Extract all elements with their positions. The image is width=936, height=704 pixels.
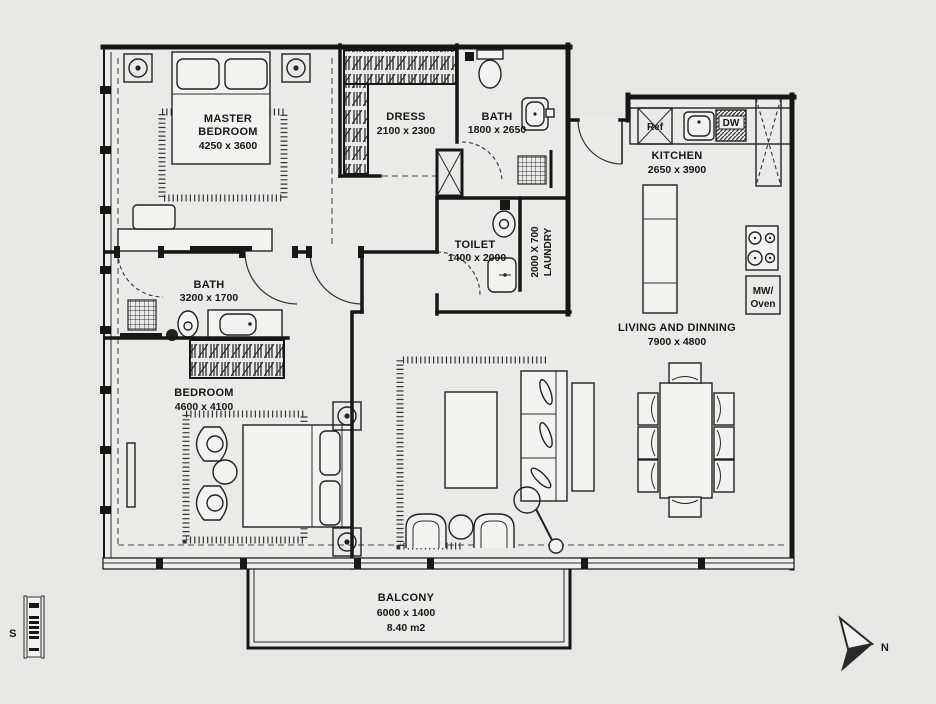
laundry-label: LAUNDRY xyxy=(543,227,554,276)
pillow xyxy=(320,481,340,525)
sofa xyxy=(521,371,567,501)
laundry-dims: 2000 X 700 xyxy=(530,226,541,278)
dress-label: DRESS xyxy=(386,111,425,123)
dishwasher-label: DW xyxy=(723,118,740,129)
dining-chair xyxy=(638,427,658,459)
wardrobe xyxy=(344,84,368,174)
dining-chair xyxy=(714,460,734,492)
wardrobe xyxy=(344,50,456,84)
dining-chair xyxy=(714,393,734,425)
pillow xyxy=(320,431,340,475)
shower xyxy=(518,156,546,184)
master-bedroom-dims: 4250 x 3600 xyxy=(199,140,258,152)
pillow xyxy=(177,59,219,89)
dining-chair xyxy=(638,393,658,425)
floor-plan-page: MASTER BEDROOM 4250 x 3600 DRESS 2100 x … xyxy=(0,0,936,704)
bedroom-dims: 4600 x 4100 xyxy=(175,401,234,413)
north-arrow-icon: N xyxy=(840,618,889,670)
island xyxy=(643,185,677,313)
kitchen-label: KITCHEN xyxy=(652,150,703,162)
balcony-area: 8.40 m2 xyxy=(387,622,426,634)
pillow xyxy=(225,59,267,89)
north-label: N xyxy=(881,642,889,654)
mw-oven-label1: MW/ xyxy=(753,286,774,297)
master-bedroom-label: MASTER xyxy=(204,113,252,125)
armchair xyxy=(406,514,446,548)
bath2-dims: 3200 x 1700 xyxy=(180,292,239,304)
armchair xyxy=(474,514,514,548)
dining-chair xyxy=(669,363,701,383)
floor-plan-drawing: MASTER BEDROOM 4250 x 3600 DRESS 2100 x … xyxy=(0,0,936,704)
living-dims: 7900 x 4800 xyxy=(648,336,707,348)
kitchen-dims: 2650 x 3900 xyxy=(648,164,707,176)
master-bedroom-label2: BEDROOM xyxy=(198,126,258,138)
toilet-label: TOILET xyxy=(455,239,496,251)
wardrobe xyxy=(190,340,284,378)
fridge-label: Ref xyxy=(647,122,664,133)
toilet-dims: 1400 x 2000 xyxy=(448,252,507,264)
side-table xyxy=(213,460,237,484)
mw-oven-label2: Oven xyxy=(750,299,775,310)
dining-chair xyxy=(669,497,701,517)
bottom-window-band xyxy=(103,558,794,569)
bath2-label: BATH xyxy=(194,279,225,291)
balcony-label: BALCONY xyxy=(378,592,435,604)
dining-chair xyxy=(714,427,734,459)
master-bath-label: BATH xyxy=(482,111,513,123)
master-bath-dims: 1800 x 2650 xyxy=(468,124,527,136)
toilet-wc xyxy=(178,311,198,337)
stool xyxy=(133,205,175,229)
console-table xyxy=(572,383,594,491)
section-label: S xyxy=(9,628,17,640)
coffee-table xyxy=(445,392,497,488)
bedroom-label: BEDROOM xyxy=(174,387,234,399)
dining-chair xyxy=(638,460,658,492)
dress-dims: 2100 x 2300 xyxy=(377,125,436,137)
toilet-wc xyxy=(493,211,515,237)
shower xyxy=(128,300,156,330)
section-marker: S xyxy=(9,596,44,658)
armchair xyxy=(197,427,228,461)
armchair xyxy=(197,486,228,520)
dining-table xyxy=(660,383,712,498)
toilet-wc xyxy=(479,60,501,88)
living-label: LIVING AND DINNING xyxy=(618,322,736,334)
side-table xyxy=(449,515,473,539)
shaft xyxy=(437,150,462,196)
balcony-dims: 6000 x 1400 xyxy=(377,607,436,619)
